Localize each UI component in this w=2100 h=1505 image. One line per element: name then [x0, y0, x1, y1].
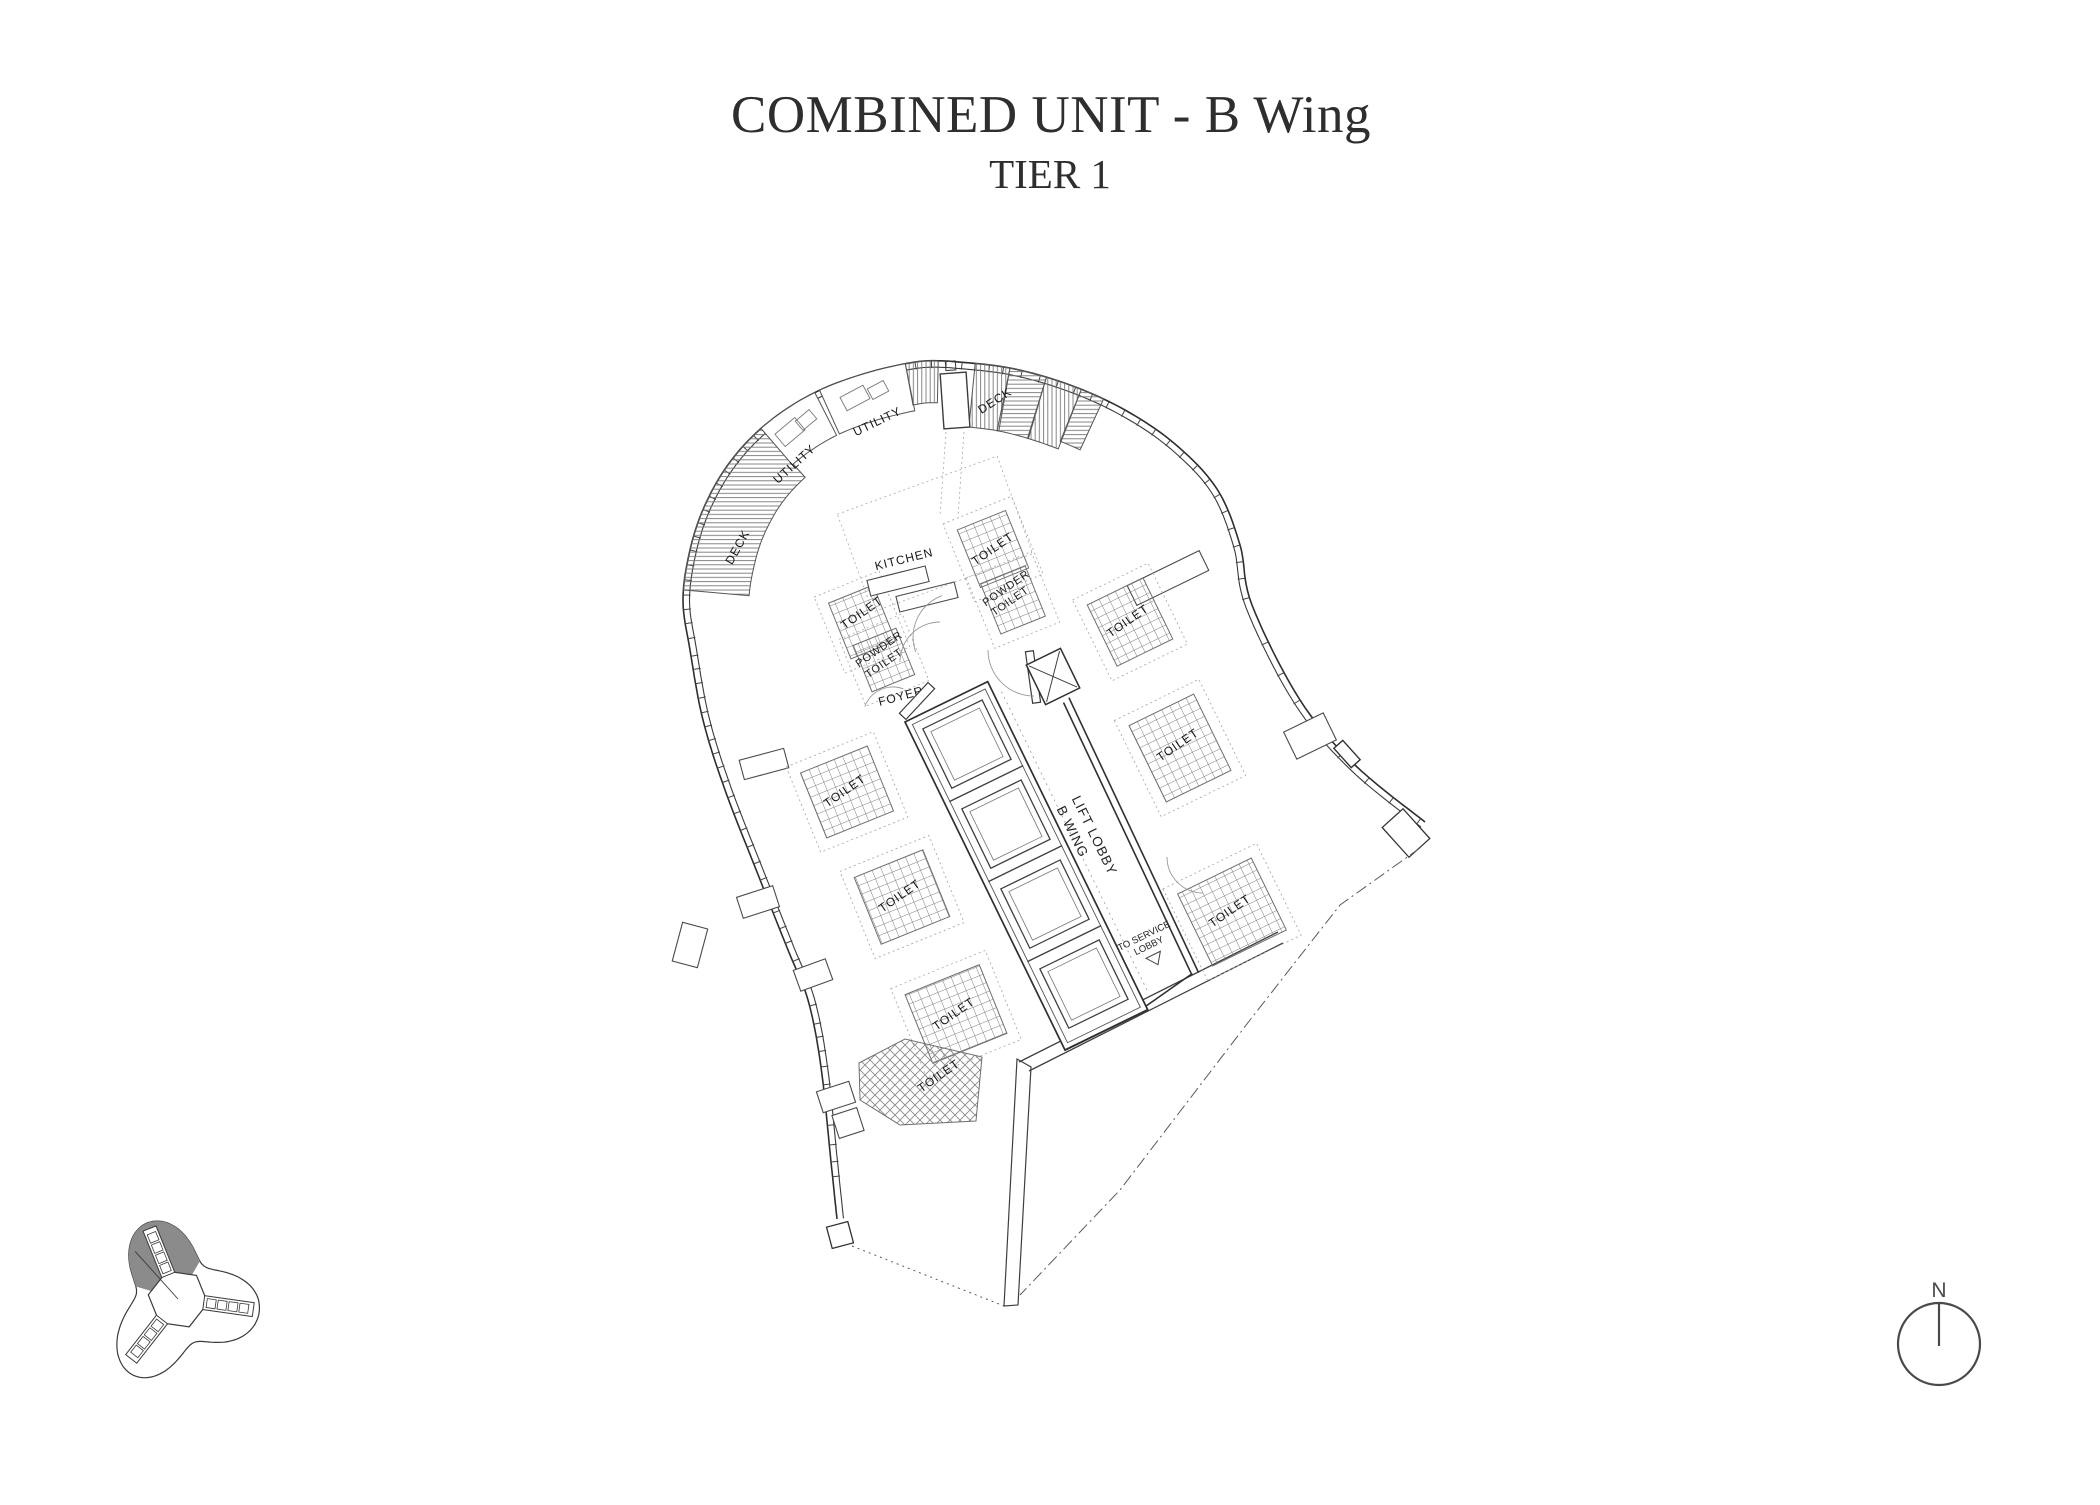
svg-text:TIER 1: TIER 1 — [989, 151, 1111, 197]
svg-text:COMBINED UNIT - B Wing: COMBINED UNIT - B Wing — [731, 86, 1371, 144]
svg-text:N: N — [1931, 1279, 1946, 1302]
